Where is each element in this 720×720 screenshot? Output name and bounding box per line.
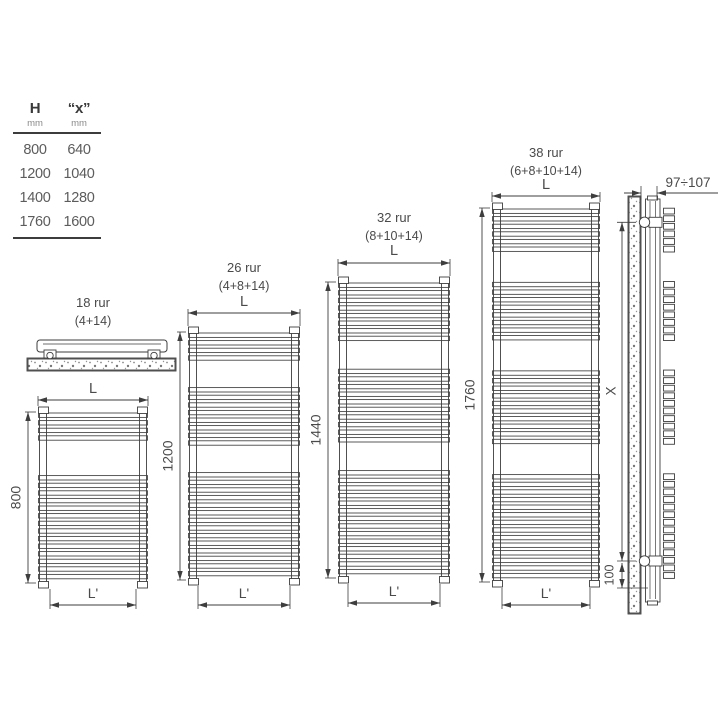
tube xyxy=(189,564,300,568)
tube xyxy=(339,486,450,490)
col-h-unit: mm xyxy=(13,118,57,129)
radiator-title: 18 rur xyxy=(76,295,111,310)
dimension-arrow xyxy=(38,397,47,402)
height-dimension-label: 1200 xyxy=(160,440,176,471)
dimension-arrow xyxy=(619,222,624,231)
tube-cross-section xyxy=(664,320,675,326)
mounting-bracket xyxy=(649,217,662,227)
tube xyxy=(189,388,300,392)
tube xyxy=(339,298,450,302)
tube-cross-section xyxy=(664,535,675,541)
mounting-plug-circle xyxy=(639,217,649,227)
dimension-arrow xyxy=(198,602,207,607)
radiator-front-view xyxy=(493,203,600,587)
dimension-arrow xyxy=(127,602,136,607)
tube xyxy=(493,566,600,570)
dimension-arrow xyxy=(325,282,330,291)
tube xyxy=(39,491,148,495)
tube-cross-section xyxy=(664,335,675,341)
rail-end-cap xyxy=(189,327,199,334)
rail-end-cap xyxy=(189,579,199,586)
rail-end-cap xyxy=(339,277,349,284)
tube xyxy=(493,416,600,420)
tube xyxy=(189,480,300,484)
tube xyxy=(39,413,148,417)
col-x-unit: mm xyxy=(57,118,101,129)
tube xyxy=(493,401,600,405)
tube xyxy=(39,421,148,425)
tube-cross-section xyxy=(664,512,675,518)
dimension-arrow xyxy=(619,563,624,572)
dimension-arrow xyxy=(348,600,357,605)
tube xyxy=(339,516,450,520)
dimension-arrow xyxy=(325,569,330,578)
tube xyxy=(493,217,600,221)
tube xyxy=(493,528,600,532)
tube xyxy=(493,424,600,428)
rail-end-cap xyxy=(590,203,600,210)
tube xyxy=(39,476,148,480)
width-dimension-label: L xyxy=(390,243,398,259)
tube xyxy=(493,432,600,436)
tube-cross-section xyxy=(664,400,675,406)
tube xyxy=(493,475,600,479)
inner-width-dimension-label: L' xyxy=(239,585,249,601)
dimension-arrow xyxy=(619,552,624,561)
size-table-header: H mm “x” mm xyxy=(13,101,101,134)
tube xyxy=(339,392,450,396)
tube xyxy=(493,305,600,309)
size-table-row: 14001280 xyxy=(13,190,101,206)
tube xyxy=(39,506,148,510)
tube-cross-section xyxy=(664,481,675,487)
tube-cross-section xyxy=(664,489,675,495)
tube-cross-section xyxy=(664,231,675,237)
tube-cross-section xyxy=(664,542,675,548)
tube xyxy=(493,224,600,228)
x-value: 1280 xyxy=(57,190,101,206)
tube xyxy=(189,518,300,522)
col-h-label: H xyxy=(13,101,57,117)
tube xyxy=(39,544,148,548)
tube xyxy=(493,298,600,302)
tube xyxy=(339,539,450,543)
tube-cross-section xyxy=(664,557,675,563)
size-table-row: 800640 xyxy=(13,142,101,158)
tube xyxy=(493,497,600,501)
x-value: 1600 xyxy=(57,214,101,230)
tube-cross-section xyxy=(664,289,675,295)
tube xyxy=(493,482,600,486)
tube-cross-section xyxy=(664,304,675,310)
tube-cross-section xyxy=(664,385,675,391)
size-table-row: 17601600 xyxy=(13,214,101,230)
dimension-arrow xyxy=(581,602,590,607)
tube xyxy=(339,400,450,404)
rail-end-cap xyxy=(493,581,503,588)
tube-cross-section xyxy=(664,378,675,384)
tube xyxy=(189,571,300,575)
radiator-tube-formula: (6+8+10+14) xyxy=(510,164,582,178)
tube xyxy=(493,558,600,562)
tube xyxy=(339,471,450,475)
connector-circle xyxy=(47,352,53,358)
tube xyxy=(339,313,450,317)
tube xyxy=(339,438,450,442)
width-dimension-label: L xyxy=(240,294,248,310)
tube xyxy=(189,356,300,360)
dimension-arrow xyxy=(291,310,300,315)
radiator-title: 26 rur xyxy=(227,260,262,275)
col-x-label: “x” xyxy=(57,101,101,117)
radiator-side-view: 97÷107X100 xyxy=(603,175,719,614)
tube xyxy=(189,348,300,352)
radiator-dimension-diagram: H mm “x” mm 8006401200104014001280176016… xyxy=(0,0,720,720)
tube xyxy=(189,403,300,407)
tube-cross-section xyxy=(664,297,675,303)
tube xyxy=(39,567,148,571)
tube-cross-section xyxy=(664,370,675,376)
tube xyxy=(339,306,450,310)
inner-width-dimension-label: L' xyxy=(541,585,551,601)
tube-cross-section xyxy=(664,312,675,318)
tube xyxy=(339,430,450,434)
dimension-arrow xyxy=(431,600,440,605)
tube xyxy=(189,495,300,499)
size-table-body: 800640120010401400128017601600 xyxy=(13,142,101,230)
tube xyxy=(189,556,300,560)
tube-cross-section xyxy=(664,438,675,444)
tube-cross-section xyxy=(664,504,675,510)
tube xyxy=(39,552,148,556)
dimension-arrow xyxy=(50,602,59,607)
tube-cross-section xyxy=(664,416,675,422)
tube xyxy=(189,433,300,437)
radiator-32-rur: 32 rur(8+10+14)L1440L' xyxy=(308,210,451,607)
tube-cross-section xyxy=(664,431,675,437)
tube xyxy=(39,529,148,533)
tube xyxy=(189,549,300,553)
tube-cross-section xyxy=(664,474,675,480)
tube xyxy=(39,559,148,563)
size-table-bottom-rule xyxy=(13,237,101,239)
tube xyxy=(39,574,148,578)
tube-cross-section xyxy=(664,565,675,571)
h-value: 1200 xyxy=(13,166,57,182)
tube xyxy=(189,395,300,399)
inner-width-dimension-label: L' xyxy=(88,585,98,601)
connector-circle xyxy=(151,352,157,358)
height-dimension-label: 1440 xyxy=(308,414,324,445)
dimension-arrow xyxy=(479,573,484,582)
radiator-title: 38 rur xyxy=(529,145,564,160)
tube-cross-section xyxy=(664,223,675,229)
dimension-arrow xyxy=(502,602,511,607)
x-value: 1040 xyxy=(57,166,101,182)
tube xyxy=(339,384,450,388)
radiator-top-view xyxy=(27,340,176,371)
tube xyxy=(493,409,600,413)
radiator-26-rur: 26 rur(4+8+14)L1200L' xyxy=(160,260,301,609)
x-value: 640 xyxy=(57,142,101,158)
width-dimension-label: L xyxy=(542,177,550,193)
mounting-bracket xyxy=(649,556,662,566)
radiator-front-view xyxy=(39,407,148,588)
dimension-arrow xyxy=(619,579,624,588)
inner-width-dimension-label: L' xyxy=(389,583,399,599)
tube xyxy=(493,394,600,398)
tube xyxy=(493,239,600,243)
dimension-arrow xyxy=(479,208,484,217)
tube xyxy=(339,547,450,551)
rail-end-cap xyxy=(39,407,49,414)
tube xyxy=(339,478,450,482)
tube xyxy=(189,418,300,422)
tube xyxy=(493,505,600,509)
tube xyxy=(39,514,148,518)
size-table-col-x: “x” mm xyxy=(57,101,101,129)
tube xyxy=(189,473,300,477)
tube xyxy=(339,407,450,411)
tube xyxy=(189,426,300,430)
tube xyxy=(189,341,300,345)
tube xyxy=(189,503,300,507)
size-table: H mm “x” mm 8006401200104014001280176016… xyxy=(13,101,101,239)
dimension-arrow xyxy=(25,412,30,421)
x-dimension-label: X xyxy=(604,386,619,395)
tube-cross-section xyxy=(664,519,675,525)
tube xyxy=(493,386,600,390)
tube xyxy=(339,501,450,505)
rail-end-cap xyxy=(290,579,300,586)
tube-cross-section xyxy=(664,216,675,222)
tube-cross-section xyxy=(664,246,675,252)
wall-speckle xyxy=(629,197,640,613)
dimension-arrow xyxy=(657,190,666,195)
bottom-offset-label: 100 xyxy=(603,565,617,586)
rail-end-cap xyxy=(440,277,450,284)
tube xyxy=(493,535,600,539)
tube xyxy=(339,524,450,528)
tube xyxy=(493,282,600,286)
tube xyxy=(493,290,600,294)
tube xyxy=(189,441,300,445)
dimension-arrow xyxy=(492,193,501,198)
tube xyxy=(189,410,300,414)
radiator-tube-formula: (4+14) xyxy=(75,314,111,328)
radiator-tube-formula: (8+10+14) xyxy=(365,229,423,243)
radiator-title: 32 rur xyxy=(377,210,412,225)
tube-cross-section xyxy=(664,423,675,429)
rail-end-cap xyxy=(290,327,300,334)
tube xyxy=(39,436,148,440)
tube xyxy=(493,551,600,555)
size-table-col-h: H mm xyxy=(13,101,57,129)
radiator-front-view xyxy=(189,327,300,585)
rail-end-cap xyxy=(39,582,49,589)
rail-end-cap xyxy=(138,407,148,414)
tube xyxy=(493,320,600,324)
tube xyxy=(493,378,600,382)
tube xyxy=(339,531,450,535)
tube xyxy=(493,573,600,577)
tube xyxy=(39,428,148,432)
mounting-plug-circle xyxy=(639,556,649,566)
tube-cross-section xyxy=(664,497,675,503)
rail-end-cap xyxy=(339,577,349,584)
h-value: 1400 xyxy=(13,190,57,206)
tube xyxy=(339,329,450,333)
tube xyxy=(493,439,600,443)
tube xyxy=(189,488,300,492)
tube xyxy=(339,422,450,426)
tube xyxy=(189,526,300,530)
tube xyxy=(339,415,450,419)
tube xyxy=(339,554,450,558)
tube xyxy=(339,562,450,566)
tube xyxy=(39,483,148,487)
tube-cross-section xyxy=(664,550,675,556)
tube xyxy=(189,533,300,537)
tube xyxy=(339,569,450,573)
rail-end-cap xyxy=(493,203,503,210)
dimension-arrow xyxy=(591,193,600,198)
width-dimension-label: L xyxy=(89,381,97,397)
wall-distance-label: 97÷107 xyxy=(666,175,711,190)
tube xyxy=(339,321,450,325)
rail-end-cap xyxy=(440,577,450,584)
tube xyxy=(493,313,600,317)
height-dimension-label: 1760 xyxy=(462,379,478,410)
dimension-arrow xyxy=(632,190,641,195)
rail-end-cap xyxy=(590,581,600,588)
h-value: 800 xyxy=(13,142,57,158)
tube xyxy=(493,490,600,494)
tube xyxy=(39,536,148,540)
tube-cross-section xyxy=(664,573,675,579)
tube-cross-section xyxy=(664,527,675,533)
tube xyxy=(189,511,300,515)
tube-cross-section xyxy=(664,208,675,214)
tube-cross-section xyxy=(664,282,675,288)
tube xyxy=(189,333,300,337)
dimension-arrow xyxy=(338,260,347,265)
radiator-18-rur: 18 rur(4+14)L800L' xyxy=(8,295,177,609)
tube xyxy=(339,336,450,340)
collector-tube-top xyxy=(37,340,167,352)
tube xyxy=(339,493,450,497)
tube xyxy=(339,509,450,513)
tube-cross-section xyxy=(664,327,675,333)
radiator-front-view xyxy=(339,277,450,583)
tube xyxy=(39,498,148,502)
dimension-arrow xyxy=(177,332,182,341)
tube xyxy=(493,209,600,213)
h-value: 1760 xyxy=(13,214,57,230)
height-dimension-label: 800 xyxy=(8,486,24,510)
tube xyxy=(493,336,600,340)
tube-cross-section xyxy=(664,239,675,245)
tube xyxy=(493,328,600,332)
rail-end-cap xyxy=(138,582,148,589)
tube-cross-section xyxy=(664,408,675,414)
dimension-arrow xyxy=(177,571,182,580)
tube xyxy=(339,369,450,373)
radiator-38-rur: 38 rur(6+8+10+14)L1760L' xyxy=(462,145,601,609)
collector-end-cap xyxy=(648,601,658,605)
dimension-arrow xyxy=(25,574,30,583)
tube xyxy=(39,521,148,525)
tube xyxy=(493,513,600,517)
collector-tube-side xyxy=(646,199,661,602)
dimension-arrow xyxy=(139,397,148,402)
collector-end-cap xyxy=(648,196,658,200)
tube xyxy=(189,541,300,545)
tube xyxy=(339,283,450,287)
dimension-arrow xyxy=(188,310,197,315)
tube xyxy=(493,247,600,251)
dimension-arrow xyxy=(441,260,450,265)
tube xyxy=(339,377,450,381)
tube-cross-section xyxy=(664,393,675,399)
dimension-arrow xyxy=(281,602,290,607)
technical-drawing: 18 rur(4+14)L800L'26 rur(4+8+14)L1200L'3… xyxy=(0,0,720,720)
tube xyxy=(493,371,600,375)
tube xyxy=(493,232,600,236)
wall-speckle xyxy=(28,359,175,370)
tube xyxy=(493,520,600,524)
radiator-tube-formula: (4+8+14) xyxy=(219,279,270,293)
tube xyxy=(339,291,450,295)
tube xyxy=(493,543,600,547)
size-table-row: 12001040 xyxy=(13,166,101,182)
